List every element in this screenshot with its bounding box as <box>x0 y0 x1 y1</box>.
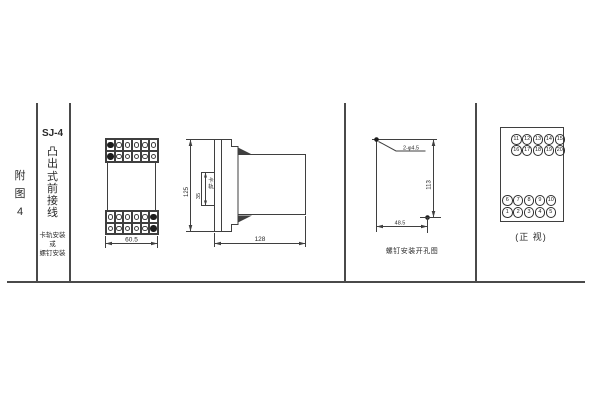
terminal-20: 20 <box>555 145 566 156</box>
terminal-12: 12 <box>522 134 533 145</box>
terminal-view-caption: (正 视) <box>498 230 564 243</box>
drill-height-dimension: 113 <box>427 140 436 218</box>
terminal-3: 3 <box>524 207 535 218</box>
drill-view-caption: 螺钉安装开孔图 <box>383 246 441 256</box>
terminal-2: 2 <box>513 207 524 218</box>
terminal-row-1-5: 1 2 3 4 5 <box>502 207 556 218</box>
terminal-6: 6 <box>502 195 513 206</box>
terminal-16: 16 <box>511 145 522 156</box>
terminal-9: 9 <box>535 195 546 206</box>
terminal-17: 17 <box>522 145 533 156</box>
terminal-4: 4 <box>535 207 546 218</box>
terminal-row-11-15: 11 12 13 14 15 <box>511 134 565 145</box>
drill-width-dim-text: 48.5 <box>395 221 406 227</box>
side-view-outline <box>202 140 306 232</box>
drill-height-dim-text: 113 <box>427 180 433 190</box>
front-width-dim-text: 60.5 <box>125 237 138 244</box>
rail-width-dim-text: 35 <box>196 193 202 199</box>
terminal-1: 1 <box>502 207 513 218</box>
terminal-10: 10 <box>546 195 557 206</box>
rail-label: 卡轨 <box>206 177 214 190</box>
terminal-11: 11 <box>511 134 522 145</box>
terminal-14: 14 <box>544 134 555 145</box>
drill-holes-label: 2-φ4.5 <box>403 146 419 152</box>
side-height-dim-text: 125 <box>184 186 190 197</box>
terminal-19: 19 <box>544 145 555 156</box>
terminal-13: 13 <box>533 134 544 145</box>
side-depth-dim-text: 128 <box>255 236 266 243</box>
terminal-row-16-20: 16 17 18 19 20 <box>511 145 565 156</box>
terminal-7: 7 <box>513 195 524 206</box>
drawing-sheet: 附 图 4 SJ-4 凸 出 式 前 接 线 卡轨安装 或 螺钉安装 <box>0 0 600 400</box>
terminal-row-6-10: 6 7 8 9 10 <box>502 195 556 206</box>
drill-width-dimension: 48.5 <box>377 221 428 229</box>
terminal-18: 18 <box>533 145 544 156</box>
drill-hole-top <box>374 137 379 142</box>
front-width-dimension: 60.5 <box>106 236 158 248</box>
terminal-5: 5 <box>546 207 557 218</box>
terminal-8: 8 <box>524 195 535 206</box>
terminal-15: 15 <box>555 134 566 145</box>
